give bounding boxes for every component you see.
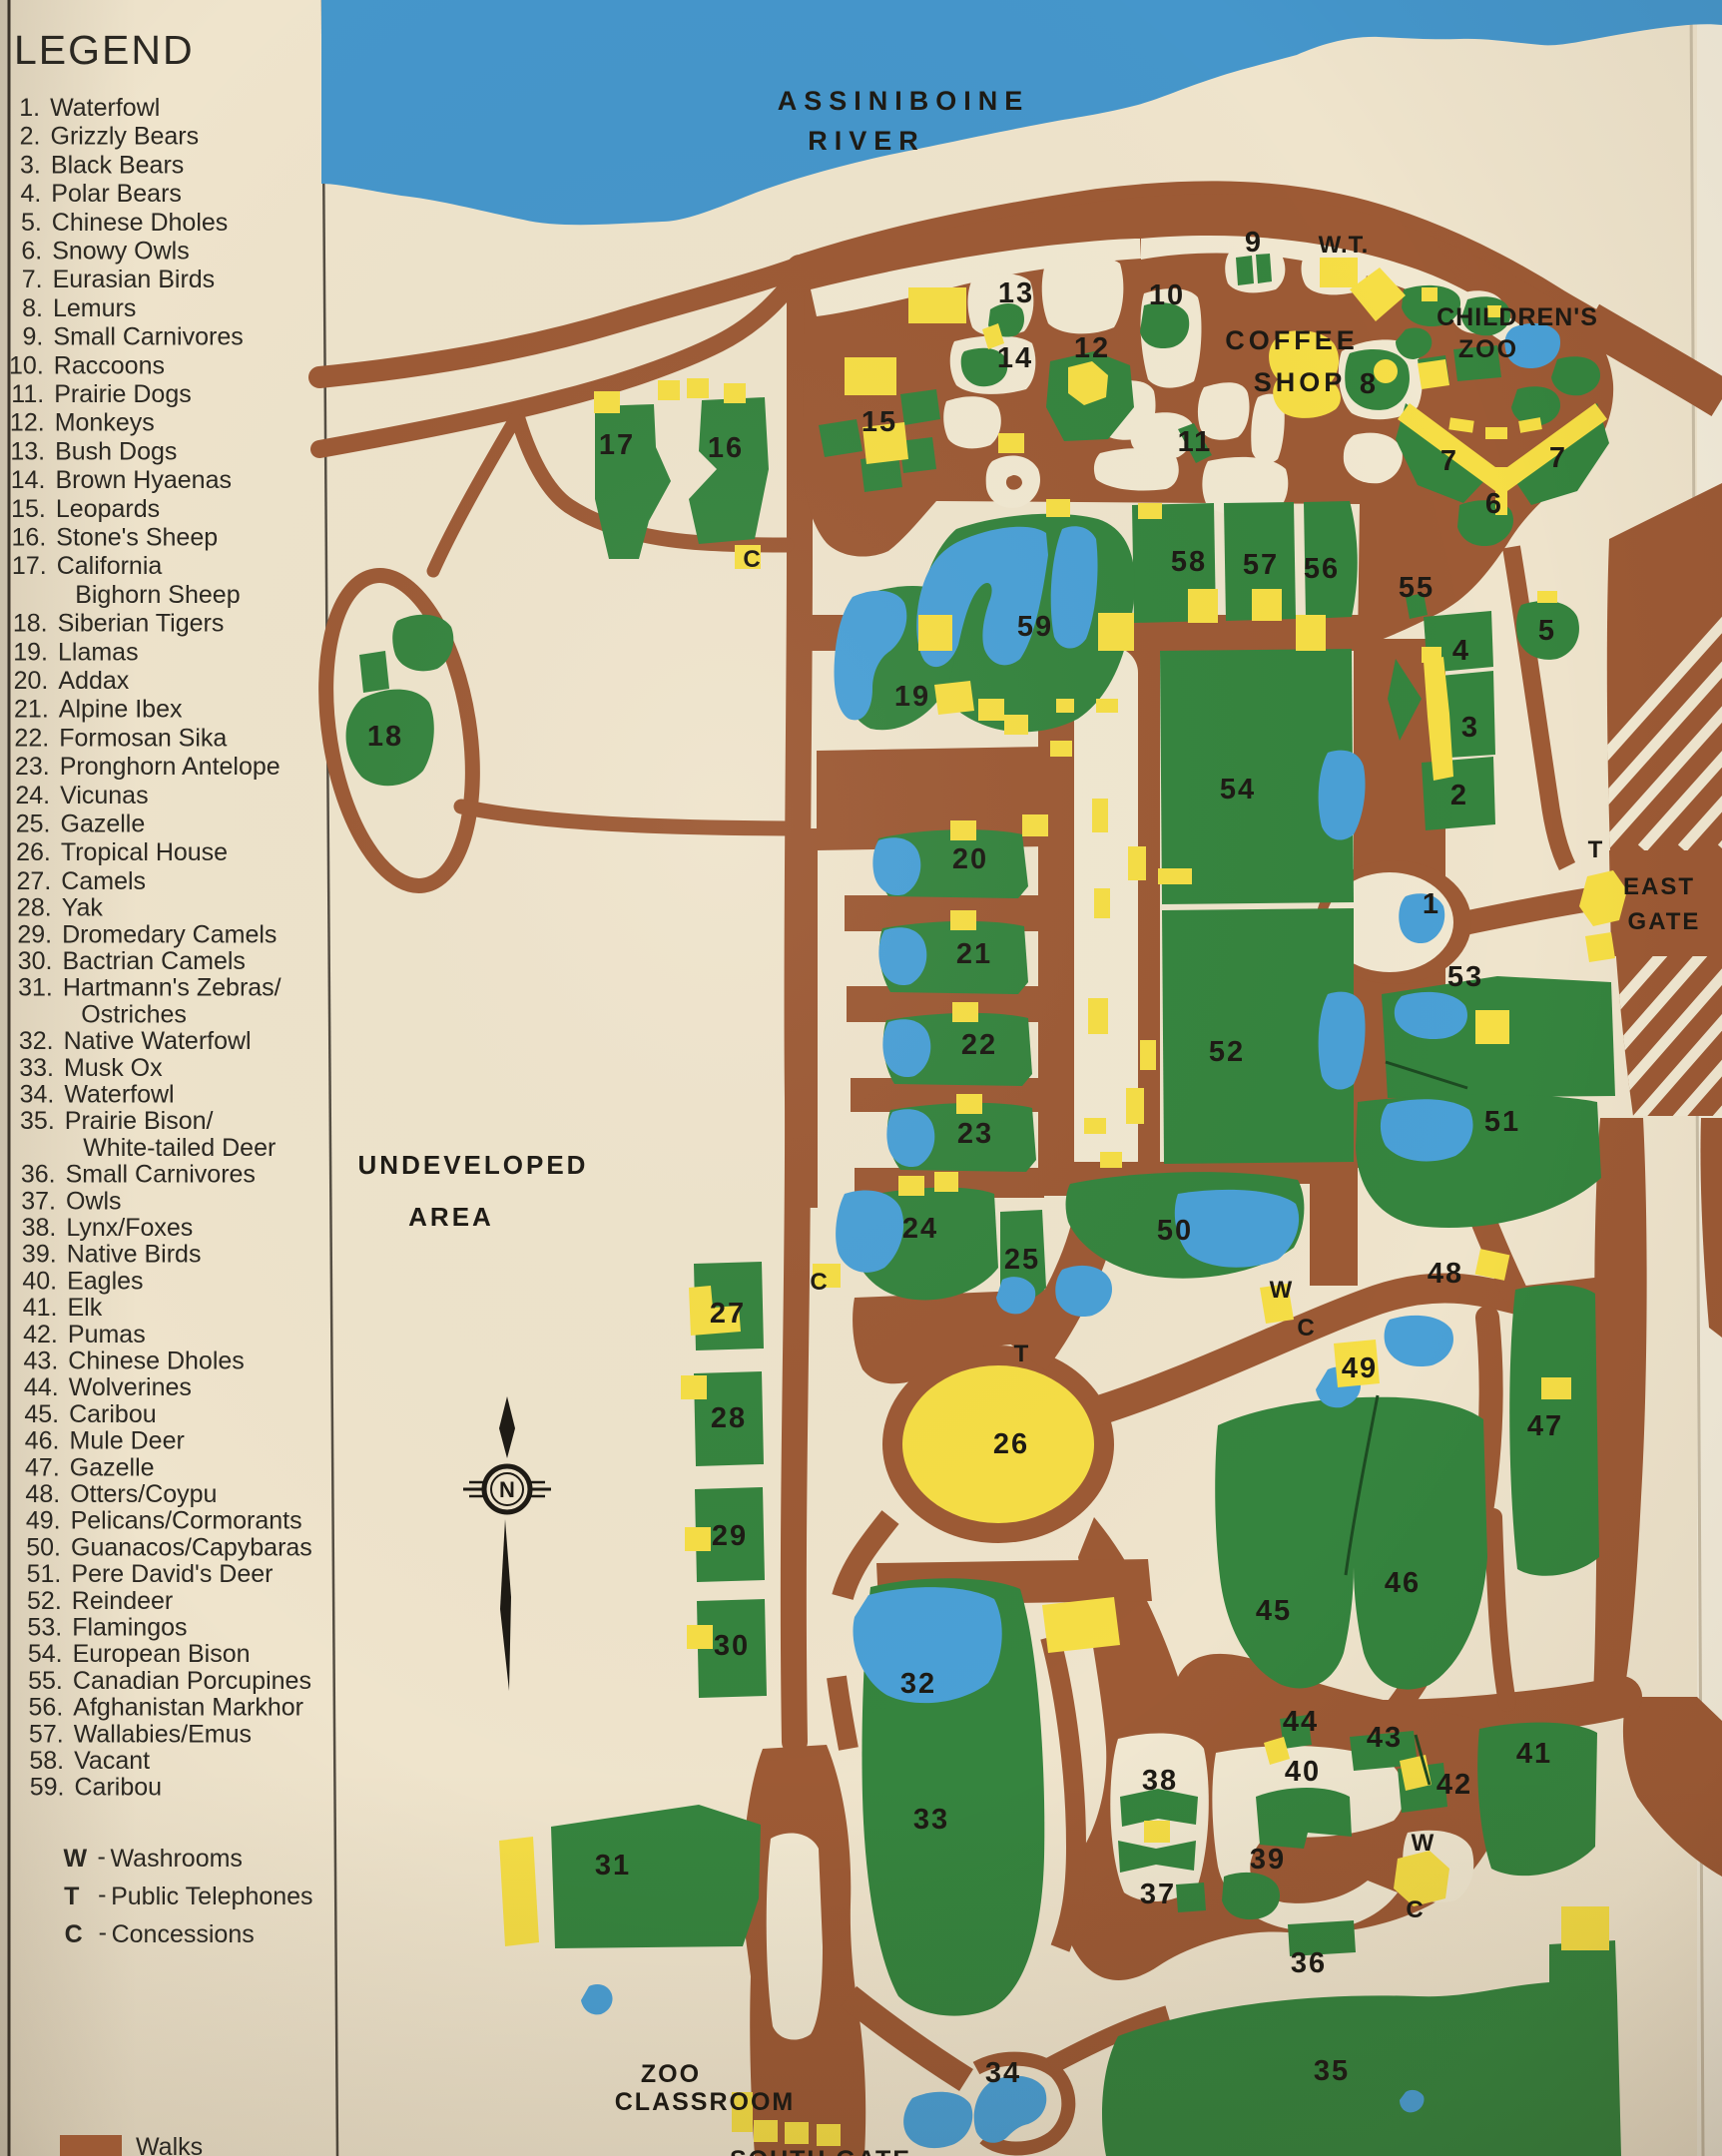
svg-text:Grizzly Bears: Grizzly Bears: [51, 123, 200, 151]
svg-text:Eurasian Birds: Eurasian Birds: [53, 266, 216, 293]
svg-text:Mule Deer: Mule Deer: [70, 1427, 185, 1455]
svg-text:Pelicans/Cormorants: Pelicans/Cormorants: [71, 1507, 302, 1535]
svg-text:44.: 44.: [24, 1373, 59, 1401]
svg-text:Raccoons: Raccoons: [54, 351, 165, 379]
svg-text:LEGEND: LEGEND: [14, 27, 195, 73]
svg-text:Prairie Dogs: Prairie Dogs: [54, 380, 192, 408]
svg-text:Native Birds: Native Birds: [67, 1241, 202, 1269]
svg-text:15.: 15.: [11, 495, 46, 523]
svg-text:7.: 7.: [22, 266, 43, 293]
svg-text:Pumas: Pumas: [68, 1321, 146, 1348]
svg-text:55.: 55.: [28, 1667, 63, 1695]
svg-text:Ostriches: Ostriches: [81, 1000, 187, 1028]
svg-text:Vacant: Vacant: [74, 1747, 150, 1775]
svg-text:28.: 28.: [17, 894, 52, 922]
svg-text:Gazelle: Gazelle: [70, 1453, 155, 1481]
svg-text:Waterfowl: Waterfowl: [64, 1081, 174, 1109]
svg-text:Polar Bears: Polar Bears: [51, 180, 182, 208]
svg-text:46.: 46.: [25, 1427, 60, 1455]
svg-text:Formosan Sika: Formosan Sika: [59, 724, 227, 752]
svg-text:36.: 36.: [21, 1161, 56, 1189]
svg-text:54.: 54.: [28, 1640, 63, 1668]
svg-text:5.: 5.: [21, 209, 42, 237]
svg-text:24.: 24.: [15, 782, 50, 809]
svg-text:30.: 30.: [18, 947, 53, 975]
svg-text:6.: 6.: [21, 238, 42, 266]
svg-text:19.: 19.: [13, 638, 48, 666]
svg-text:Stone's Sheep: Stone's Sheep: [56, 524, 218, 552]
svg-text:Gazelle: Gazelle: [61, 810, 146, 838]
svg-text:Alpine Ibex: Alpine Ibex: [59, 696, 183, 724]
svg-text:Lynx/Foxes: Lynx/Foxes: [66, 1214, 193, 1242]
svg-text:59.: 59.: [30, 1774, 65, 1802]
svg-text:27.: 27.: [17, 867, 52, 895]
svg-text:Dromedary Camels: Dromedary Camels: [62, 920, 277, 948]
svg-text:23.: 23.: [15, 753, 50, 781]
svg-text:39.: 39.: [22, 1241, 57, 1269]
svg-text:Elk: Elk: [68, 1294, 103, 1322]
svg-text:Yak: Yak: [62, 894, 104, 922]
svg-text:Black Bears: Black Bears: [51, 151, 184, 179]
svg-text:57.: 57.: [29, 1720, 64, 1748]
svg-text:9.: 9.: [23, 323, 44, 351]
svg-text:29.: 29.: [17, 920, 52, 948]
svg-text:49.: 49.: [26, 1507, 61, 1535]
svg-text:Canadian Porcupines: Canadian Porcupines: [73, 1667, 311, 1695]
svg-text:4.: 4.: [20, 180, 41, 208]
svg-text:Guanacos/Capybaras: Guanacos/Capybaras: [71, 1533, 312, 1561]
svg-text:Bush Dogs: Bush Dogs: [55, 437, 177, 465]
svg-text:48.: 48.: [25, 1480, 60, 1508]
svg-text:51.: 51.: [27, 1560, 62, 1588]
svg-text:11.: 11.: [11, 380, 44, 408]
svg-text:3.: 3.: [20, 151, 41, 179]
svg-text:40.: 40.: [22, 1267, 57, 1295]
svg-text:W: W: [64, 1845, 88, 1873]
svg-text:47.: 47.: [25, 1453, 60, 1481]
svg-text:Addax: Addax: [58, 667, 129, 695]
svg-text:European Bison: European Bison: [73, 1640, 251, 1668]
svg-text:Public Telephones: Public Telephones: [111, 1883, 312, 1910]
svg-text:Pronghorn Antelope: Pronghorn Antelope: [60, 753, 281, 781]
svg-text:Waterfowl: Waterfowl: [50, 94, 160, 122]
svg-text:35.: 35.: [20, 1107, 55, 1135]
svg-text:Owls: Owls: [66, 1187, 122, 1215]
svg-text:Leopards: Leopards: [56, 495, 160, 523]
svg-text:C: C: [65, 1920, 83, 1948]
svg-text:52.: 52.: [27, 1587, 62, 1615]
svg-text:Tropical House: Tropical House: [61, 838, 228, 866]
svg-text:32.: 32.: [19, 1027, 54, 1055]
svg-text:1.: 1.: [19, 94, 40, 122]
svg-text:18.: 18.: [13, 610, 48, 638]
svg-text:43.: 43.: [24, 1347, 59, 1375]
svg-text:Pere David's Deer: Pere David's Deer: [71, 1560, 273, 1588]
svg-text:-: -: [98, 1843, 106, 1871]
svg-text:Caribou: Caribou: [75, 1774, 163, 1802]
svg-text:Wolverines: Wolverines: [69, 1373, 192, 1401]
svg-text:Siberian Tigers: Siberian Tigers: [58, 610, 225, 638]
svg-text:Chinese Dholes: Chinese Dholes: [68, 1347, 245, 1375]
svg-text:Monkeys: Monkeys: [55, 409, 155, 437]
svg-text:Llamas: Llamas: [58, 638, 139, 666]
svg-text:Brown Hyaenas: Brown Hyaenas: [56, 466, 232, 494]
svg-text:50.: 50.: [26, 1533, 61, 1561]
svg-text:Camels: Camels: [61, 867, 146, 895]
svg-text:33.: 33.: [19, 1054, 54, 1082]
svg-text:White-tailed Deer: White-tailed Deer: [83, 1134, 276, 1162]
svg-text:45.: 45.: [24, 1400, 59, 1428]
svg-text:Snowy Owls: Snowy Owls: [52, 238, 190, 266]
svg-text:Otters/Coypu: Otters/Coypu: [70, 1480, 217, 1508]
svg-text:58.: 58.: [29, 1747, 64, 1775]
svg-text:Concessions: Concessions: [112, 1920, 255, 1948]
svg-text:Caribou: Caribou: [69, 1400, 157, 1428]
svg-text:Wallabies/Emus: Wallabies/Emus: [74, 1720, 252, 1748]
svg-text:Eagles: Eagles: [67, 1267, 143, 1295]
svg-text:8.: 8.: [22, 294, 43, 322]
svg-text:53.: 53.: [27, 1614, 62, 1642]
svg-text:Bighorn Sheep: Bighorn Sheep: [75, 581, 240, 609]
svg-text:13.: 13.: [10, 437, 45, 465]
svg-text:20.: 20.: [14, 667, 49, 695]
svg-text:42.: 42.: [23, 1321, 58, 1348]
svg-text:38.: 38.: [22, 1214, 57, 1242]
svg-text:Hartmann's Zebras/: Hartmann's Zebras/: [63, 974, 282, 1002]
svg-text:California: California: [57, 552, 163, 580]
svg-text:41.: 41.: [23, 1294, 58, 1322]
svg-text:2.: 2.: [20, 123, 41, 151]
svg-text:Native Waterfowl: Native Waterfowl: [64, 1027, 252, 1055]
svg-text:10.: 10.: [9, 351, 44, 379]
svg-text:Flamingos: Flamingos: [72, 1614, 187, 1642]
svg-text:14.: 14.: [11, 466, 46, 494]
svg-text:Washrooms: Washrooms: [111, 1845, 243, 1873]
svg-text:37.: 37.: [21, 1187, 56, 1215]
svg-text:Lemurs: Lemurs: [53, 294, 136, 322]
svg-text:T: T: [64, 1883, 79, 1910]
svg-text:26.: 26.: [16, 838, 51, 866]
svg-text:Prairie Bison/: Prairie Bison/: [65, 1107, 214, 1135]
svg-text:Reindeer: Reindeer: [72, 1587, 173, 1615]
svg-text:17.: 17.: [12, 552, 47, 580]
svg-text:Small Carnivores: Small Carnivores: [53, 323, 243, 351]
svg-text:21.: 21.: [14, 696, 49, 724]
svg-text:56.: 56.: [29, 1694, 64, 1722]
svg-text:Bactrian Camels: Bactrian Camels: [63, 947, 246, 975]
svg-text:Walks: Walks: [136, 2133, 203, 2156]
svg-text:Vicunas: Vicunas: [60, 782, 149, 809]
svg-text:22.: 22.: [14, 724, 49, 752]
svg-text:Afghanistan Markhor: Afghanistan Markhor: [73, 1694, 303, 1722]
svg-text:34.: 34.: [20, 1081, 55, 1109]
svg-text:Small Carnivores: Small Carnivores: [66, 1161, 256, 1189]
svg-text:Chinese Dholes: Chinese Dholes: [52, 209, 229, 237]
svg-text:16.: 16.: [12, 524, 47, 552]
svg-text:-: -: [99, 1918, 107, 1946]
svg-text:12.: 12.: [10, 409, 45, 437]
svg-text:31.: 31.: [18, 974, 53, 1002]
svg-text:25.: 25.: [16, 810, 51, 838]
svg-text:Musk Ox: Musk Ox: [64, 1054, 163, 1082]
svg-text:-: -: [98, 1881, 106, 1908]
